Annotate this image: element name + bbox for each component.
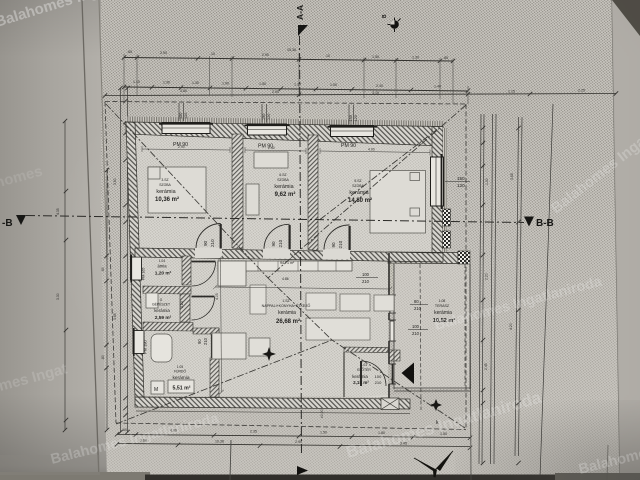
- svg-text:6.SZ: 6.SZ: [279, 173, 286, 177]
- svg-text:10,36: 10,36: [215, 439, 224, 443]
- svg-text:210: 210: [278, 239, 283, 247]
- svg-text:2.45: 2.45: [484, 363, 488, 370]
- svg-text:80: 80: [414, 299, 419, 304]
- svg-text:210: 210: [412, 331, 420, 336]
- svg-text:B-B: B-B: [536, 218, 554, 229]
- svg-text:1.01: 1.01: [361, 363, 367, 367]
- svg-text:3.30: 3.30: [56, 293, 60, 300]
- svg-text:15,36: 15,36: [287, 48, 296, 52]
- svg-text:210: 210: [414, 306, 422, 311]
- svg-text:1.30: 1.30: [163, 81, 170, 85]
- svg-text:ámia: ámia: [157, 264, 167, 269]
- svg-text:120: 120: [267, 114, 271, 120]
- svg-text:1,20 m²: 1,20 m²: [155, 271, 172, 277]
- svg-text:kerámia: kerámia: [352, 374, 368, 379]
- svg-text:.85: .85: [443, 56, 448, 60]
- svg-text:90: 90: [271, 241, 276, 247]
- svg-text:5.SZ: 5.SZ: [354, 179, 361, 183]
- svg-text:4.86: 4.86: [282, 277, 289, 281]
- svg-text:210: 210: [338, 240, 343, 248]
- svg-text:90: 90: [203, 240, 208, 246]
- svg-text:kerámia: kerámia: [156, 189, 175, 195]
- svg-text:4.00: 4.00: [368, 148, 375, 152]
- svg-text:100: 100: [375, 374, 382, 379]
- svg-text:210: 210: [203, 337, 208, 345]
- svg-text:-B: -B: [2, 218, 13, 229]
- svg-text:TERASZ: TERASZ: [435, 304, 450, 308]
- svg-text:90: 90: [197, 339, 202, 344]
- svg-text:1.15: 1.15: [508, 90, 515, 94]
- svg-text:B: B: [382, 14, 388, 18]
- svg-text:100: 100: [362, 272, 370, 277]
- svg-text:4.35: 4.35: [56, 208, 60, 215]
- svg-text:PM 180: PM 180: [143, 339, 148, 354]
- svg-text:4.05: 4.05: [215, 293, 219, 300]
- svg-text:2.90: 2.90: [272, 90, 279, 94]
- svg-text:120: 120: [354, 115, 358, 121]
- svg-text:2.40: 2.40: [376, 84, 383, 88]
- svg-text:2,19 m²: 2,19 m²: [353, 380, 369, 385]
- svg-text:2.25: 2.25: [578, 89, 585, 93]
- svg-text:kerámia: kerámia: [349, 190, 368, 196]
- svg-text:1.10: 1.10: [133, 80, 140, 84]
- svg-text:1.50: 1.50: [372, 55, 379, 59]
- svg-text:210: 210: [210, 239, 215, 247]
- svg-text:PM 90: PM 90: [173, 142, 188, 148]
- svg-text:PM 165: PM 165: [142, 268, 146, 280]
- svg-text:kerámia: kerámia: [154, 308, 170, 313]
- svg-text:210: 210: [362, 279, 370, 284]
- svg-text:.65: .65: [127, 50, 132, 54]
- svg-text:1.08: 1.08: [439, 299, 446, 303]
- svg-text:3.10: 3.10: [372, 91, 379, 95]
- svg-text:3.80: 3.80: [180, 89, 187, 93]
- svg-text:1.50: 1.50: [259, 82, 266, 86]
- svg-text:1.50: 1.50: [330, 83, 337, 87]
- svg-text:FÜRDŐ: FÜRDŐ: [174, 369, 186, 374]
- svg-text:±0,00: ±0,00: [320, 409, 324, 418]
- svg-text:SZOBA: SZOBA: [159, 183, 171, 187]
- svg-text:90: 90: [331, 242, 336, 248]
- svg-text:M: M: [154, 387, 158, 393]
- svg-text:14,80 m²: 14,80 m²: [348, 197, 372, 204]
- svg-text:2.90: 2.90: [262, 53, 269, 57]
- svg-text:A-A: A-A: [295, 5, 305, 20]
- svg-text:120: 120: [184, 113, 188, 119]
- svg-text:1.SZ: 1.SZ: [282, 299, 289, 303]
- svg-text:26,68 m²: 26,68 m²: [276, 318, 300, 325]
- svg-text:2,59 m²: 2,59 m²: [155, 315, 172, 321]
- svg-text:ELŐTÉR: ELŐTÉR: [357, 367, 371, 372]
- svg-text:kerámia: kerámia: [278, 310, 296, 316]
- svg-text:.10: .10: [210, 52, 215, 56]
- svg-text:100: 100: [412, 324, 420, 329]
- svg-text:2.20: 2.20: [485, 273, 489, 280]
- svg-text:.80: .80: [101, 355, 105, 360]
- svg-text:1.05: 1.05: [177, 365, 183, 369]
- svg-text:NAPPALI+KONYHA+ÉTKEZŐ: NAPPALI+KONYHA+ÉTKEZŐ: [262, 303, 311, 308]
- svg-text:2.35: 2.35: [250, 430, 257, 434]
- svg-text:4.20: 4.20: [509, 323, 513, 330]
- svg-text:3.60: 3.60: [113, 178, 117, 185]
- svg-text:.10: .10: [325, 54, 330, 58]
- svg-text:PM 90: PM 90: [258, 144, 273, 150]
- svg-text:1.30: 1.30: [192, 81, 199, 85]
- svg-text:120: 120: [457, 183, 465, 188]
- svg-text:1.50: 1.50: [320, 431, 327, 435]
- svg-text:10,36 m²: 10,36 m²: [155, 196, 179, 203]
- svg-text:.80: .80: [101, 267, 105, 272]
- svg-text:SZOBA: SZOBA: [277, 178, 289, 182]
- svg-text:1.30: 1.30: [412, 56, 419, 60]
- svg-text:9,62 m²: 9,62 m²: [275, 191, 296, 198]
- svg-text:150: 150: [179, 113, 183, 119]
- svg-text:3.65: 3.65: [510, 173, 514, 180]
- svg-text:kerámia: kerámia: [274, 184, 293, 190]
- svg-text:1.50: 1.50: [485, 178, 489, 185]
- svg-text:2.90: 2.90: [160, 51, 167, 55]
- svg-text:94,71 m²: 94,71 m²: [280, 261, 295, 265]
- svg-text:150: 150: [457, 176, 465, 181]
- svg-text:5,51 m²: 5,51 m²: [173, 386, 191, 392]
- svg-text:3.85: 3.85: [113, 313, 117, 320]
- svg-text:150: 150: [262, 114, 266, 120]
- svg-text:SZOBA: SZOBA: [352, 184, 364, 188]
- svg-text:210: 210: [375, 380, 382, 385]
- svg-text:PM 90: PM 90: [341, 143, 356, 149]
- svg-text:150: 150: [349, 115, 353, 121]
- svg-text:kerámia: kerámia: [172, 375, 189, 381]
- svg-text:1.04: 1.04: [159, 259, 165, 263]
- svg-text:3.SZ: 3.SZ: [161, 178, 168, 182]
- svg-text:1.00: 1.00: [222, 82, 229, 86]
- svg-text:GÉPÉSZET: GÉPÉSZET: [152, 302, 170, 307]
- svg-text:210: 210: [179, 300, 184, 308]
